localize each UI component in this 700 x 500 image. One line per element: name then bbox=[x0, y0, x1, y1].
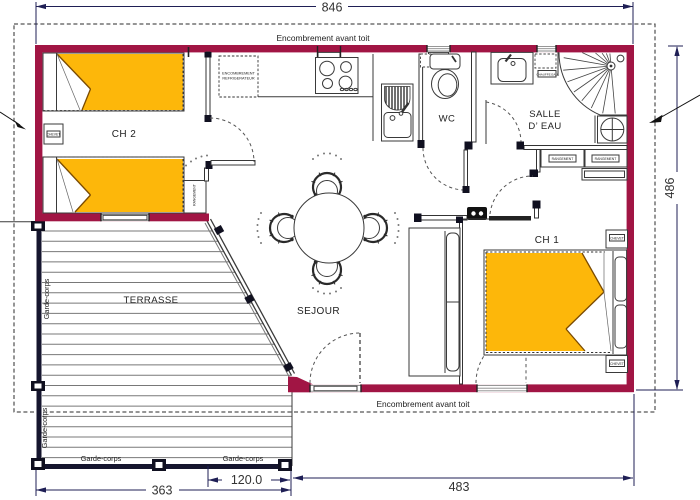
svg-text:Garde-corps: Garde-corps bbox=[42, 278, 51, 319]
svg-text:TERRASSE: TERRASSE bbox=[124, 295, 179, 306]
svg-text:REFRIGERATEUR: REFRIGERATEUR bbox=[222, 77, 254, 81]
svg-text:Garde-corps: Garde-corps bbox=[223, 454, 264, 463]
svg-text:CHEVET: CHEVET bbox=[610, 362, 624, 366]
svg-text:846: 846 bbox=[322, 1, 343, 15]
svg-text:RANGEMENT: RANGEMENT bbox=[552, 157, 574, 161]
svg-text:483: 483 bbox=[449, 480, 470, 494]
svg-text:CHEVET: CHEVET bbox=[610, 236, 624, 240]
svg-text:D’ EAU: D’ EAU bbox=[528, 121, 561, 132]
svg-text:ENCOMBREMENT: ENCOMBREMENT bbox=[222, 72, 255, 76]
svg-text:SALLE: SALLE bbox=[529, 109, 561, 120]
svg-text:SEJOUR: SEJOUR bbox=[297, 306, 340, 317]
svg-text:WC: WC bbox=[439, 114, 456, 125]
svg-text:Encombrement avant toit: Encombrement avant toit bbox=[276, 33, 370, 43]
svg-text:486: 486 bbox=[663, 178, 677, 199]
svg-text:RANGEMENT: RANGEMENT bbox=[193, 184, 197, 206]
svg-text:CHAUFFE EAU: CHAUFFE EAU bbox=[536, 72, 557, 76]
svg-text:CH 2: CH 2 bbox=[112, 129, 136, 140]
svg-text:CHEVET: CHEVET bbox=[47, 133, 61, 137]
svg-text:120.0: 120.0 bbox=[231, 473, 262, 487]
svg-text:CH 1: CH 1 bbox=[535, 235, 559, 246]
svg-text:Encombrement avant toit: Encombrement avant toit bbox=[376, 399, 470, 409]
svg-text:Garde-corps: Garde-corps bbox=[40, 407, 49, 448]
svg-text:Garde-corps: Garde-corps bbox=[81, 454, 122, 463]
svg-text:RANGEMENT: RANGEMENT bbox=[595, 157, 617, 161]
svg-text:363: 363 bbox=[152, 484, 173, 498]
